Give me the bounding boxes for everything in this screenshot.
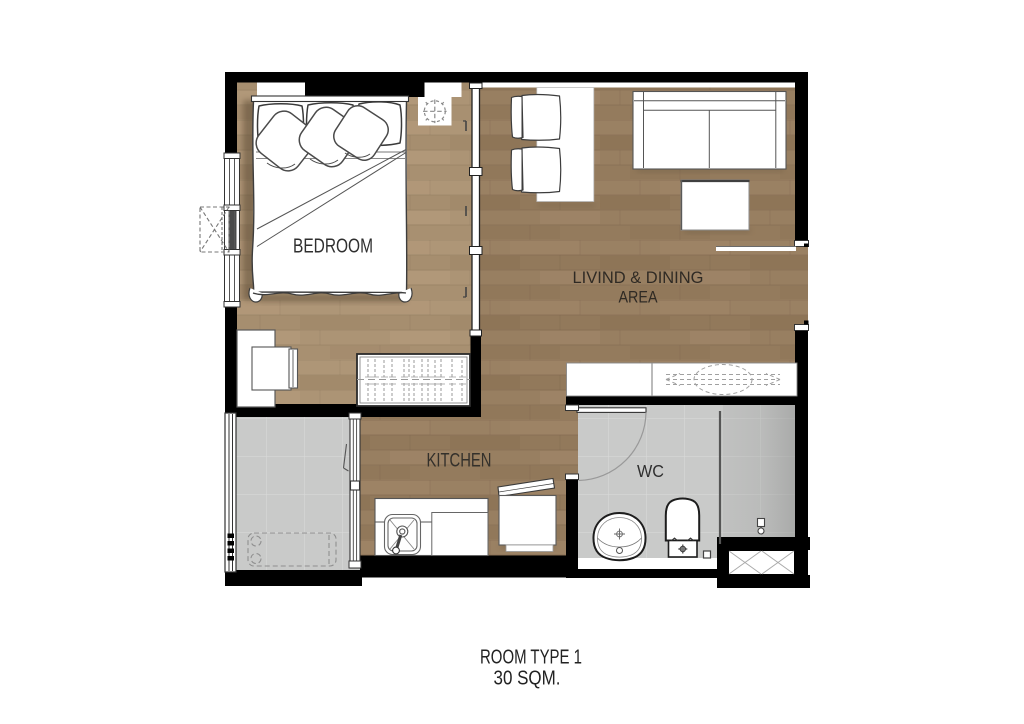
svg-text:BEDROOM: BEDROOM	[293, 235, 373, 258]
svg-text:ROOM TYPE 1: ROOM TYPE 1	[480, 647, 582, 669]
svg-text:KITCHEN: KITCHEN	[427, 450, 492, 472]
svg-text:LIVIND & DINING: LIVIND & DINING	[573, 268, 704, 287]
svg-text:WC: WC	[637, 461, 664, 481]
svg-text:30 SQM.: 30 SQM.	[494, 668, 561, 690]
svg-text:AREA: AREA	[619, 288, 659, 307]
